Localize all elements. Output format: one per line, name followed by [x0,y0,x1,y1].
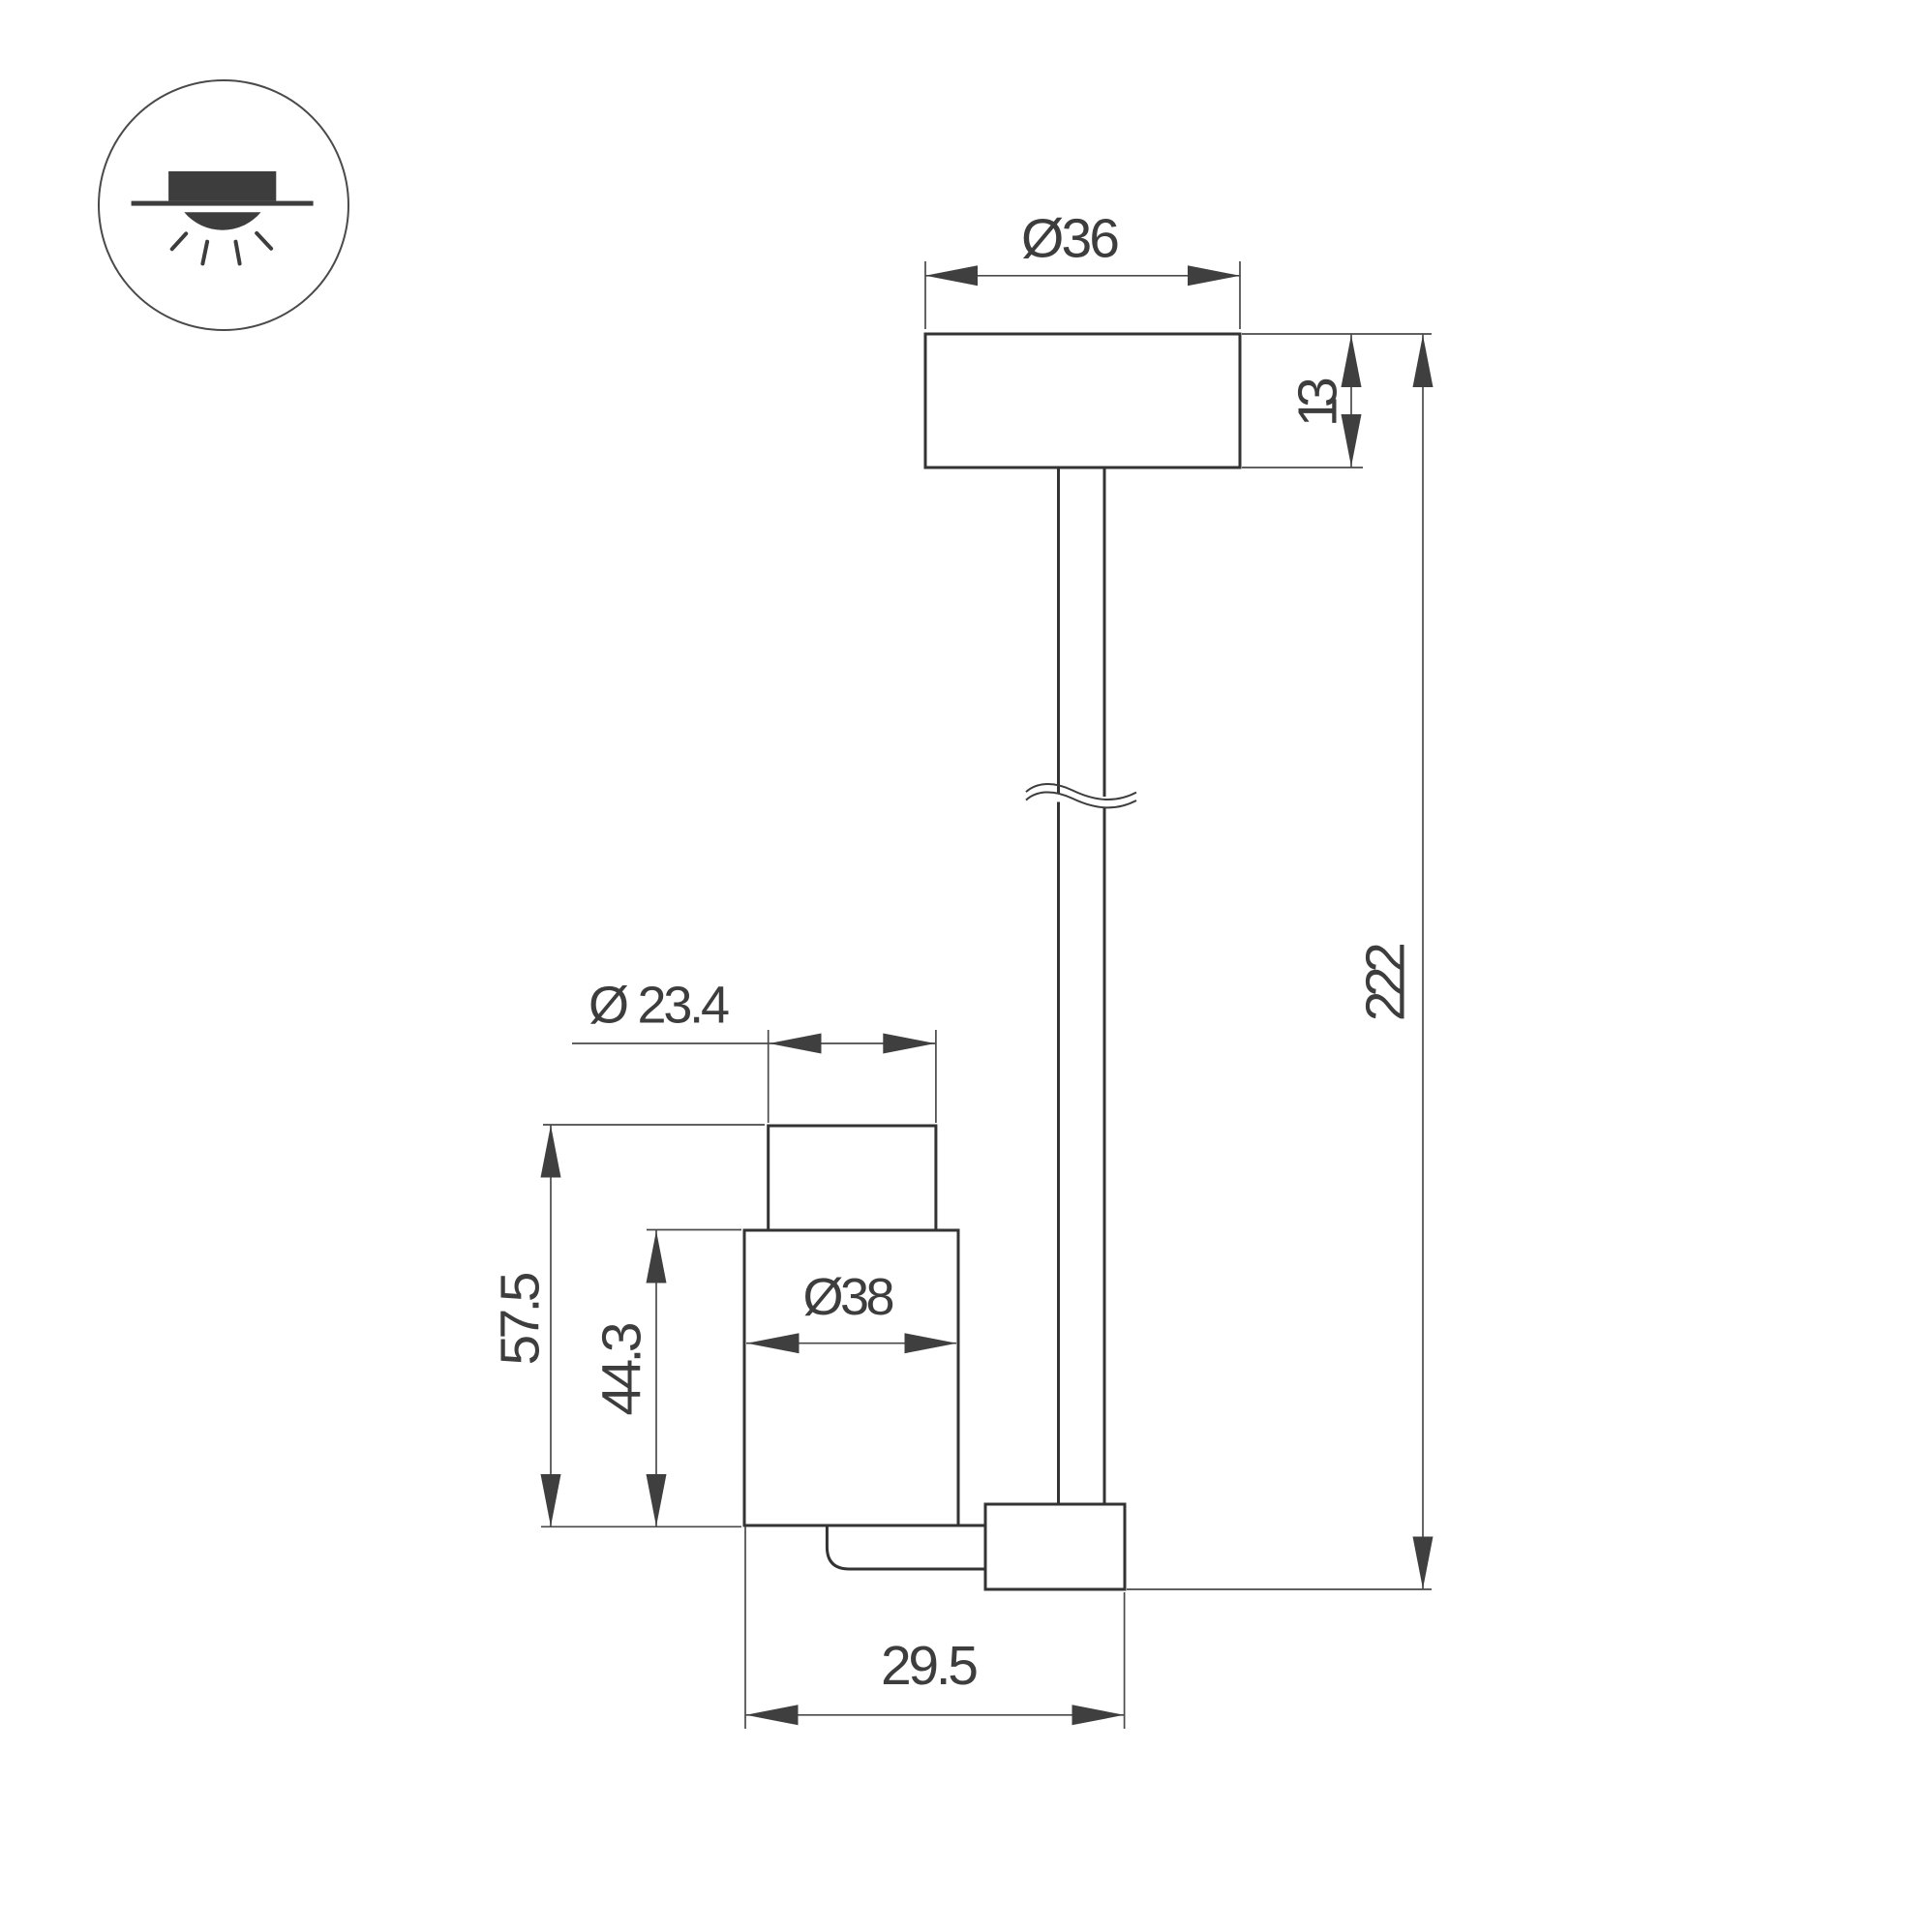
svg-text:44.3: 44.3 [591,1322,653,1416]
svg-text:57.5: 57.5 [490,1272,552,1366]
svg-text:Ø36: Ø36 [1021,207,1120,269]
svg-text:Ø 23.4: Ø 23.4 [589,977,730,1035]
svg-text:222: 222 [1355,942,1417,1021]
svg-text:13: 13 [1287,377,1349,427]
svg-text:29.5: 29.5 [881,1635,979,1697]
svg-text:Ø38: Ø38 [803,1268,895,1326]
